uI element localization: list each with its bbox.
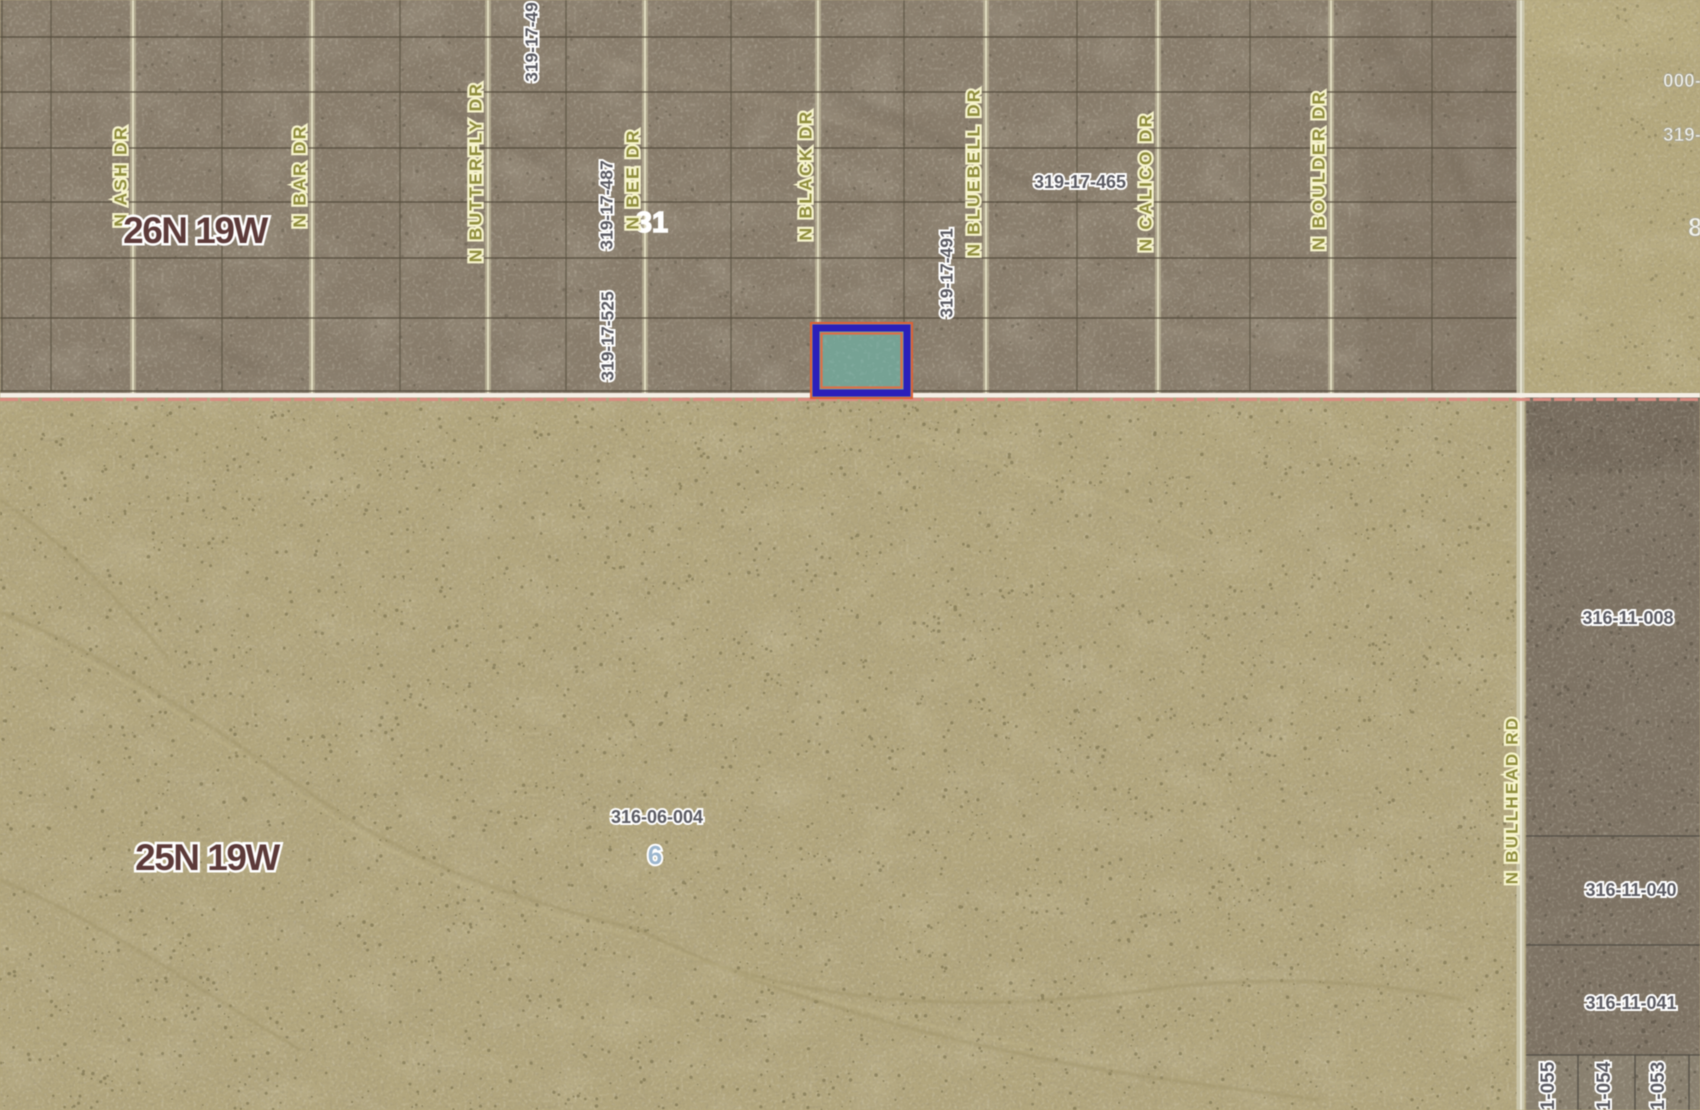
svg-text:25N 19W: 25N 19W	[135, 837, 280, 878]
svg-text:6: 6	[648, 840, 662, 870]
svg-text:N BEE DR: N BEE DR	[623, 128, 643, 229]
svg-text:1-055: 1-055	[1538, 1061, 1559, 1110]
svg-text:N BOULDER DR: N BOULDER DR	[1309, 90, 1329, 251]
svg-text:319-1: 319-1	[1663, 125, 1700, 146]
svg-text:N BULLHEAD RD: N BULLHEAD RD	[1502, 716, 1521, 884]
svg-text:316-06-004: 316-06-004	[611, 807, 703, 827]
svg-text:319-17-487: 319-17-487	[597, 160, 617, 250]
svg-text:26N 19W: 26N 19W	[123, 210, 268, 251]
svg-text:N BAR DR: N BAR DR	[290, 124, 310, 227]
svg-text:316-11-041: 316-11-041	[1585, 993, 1676, 1013]
svg-text:319-17-465: 319-17-465	[1034, 172, 1126, 192]
svg-text:319-17-525: 319-17-525	[598, 291, 618, 381]
svg-text:316-11-008: 316-11-008	[1582, 608, 1673, 628]
svg-text:8: 8	[1688, 212, 1700, 242]
svg-text:N BLACK DR: N BLACK DR	[796, 110, 816, 241]
svg-text:N BLUEBELL DR: N BLUEBELL DR	[964, 87, 984, 256]
svg-text:1-054: 1-054	[1594, 1061, 1615, 1110]
svg-text:N CALICO DR: N CALICO DR	[1136, 113, 1156, 252]
svg-text:N BUTTERFLY DR: N BUTTERFLY DR	[466, 82, 486, 263]
svg-text:1-053: 1-053	[1648, 1062, 1669, 1110]
svg-text:316-11-040: 316-11-040	[1585, 880, 1676, 900]
svg-text:319-17-491: 319-17-491	[937, 228, 957, 318]
svg-text:319-17-49: 319-17-49	[522, 2, 542, 82]
svg-text:000-0: 000-0	[1663, 71, 1700, 92]
